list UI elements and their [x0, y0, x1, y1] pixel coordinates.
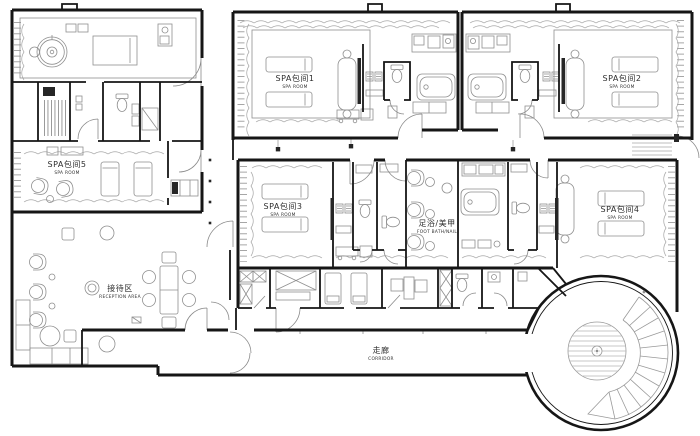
side-table-icon — [49, 303, 55, 309]
sofa-icon — [566, 50, 584, 118]
room-label-spa4: SPA包间4 SPA ROOM — [601, 204, 640, 221]
shower-icon — [540, 204, 547, 213]
wall — [238, 268, 566, 330]
stool-icon — [64, 330, 76, 342]
bench-icon — [539, 226, 554, 233]
room-label-spa3-en: SPA ROOM — [270, 212, 295, 218]
floor-plan-page: SPA包间1 SPA ROOM SPA包间2 SPA ROOM SPA包间3 S… — [0, 0, 700, 436]
shower-icon — [549, 204, 556, 213]
shower-icon — [345, 204, 352, 213]
room-label-footbath: 足浴/美甲 FOOT BATH/NAIL — [417, 218, 457, 235]
plant-icon — [85, 281, 99, 295]
shower-icon — [543, 72, 550, 81]
sink-icon — [132, 116, 139, 126]
closet-icon — [440, 270, 452, 306]
column-dot — [209, 159, 212, 162]
round-table-icon — [100, 226, 114, 240]
mirror-panel — [358, 58, 362, 104]
toilet-icon — [116, 94, 128, 112]
sofa-icon — [338, 50, 356, 118]
room-label-reception-en: RECEPTION AREA — [99, 294, 141, 300]
wall — [233, 140, 236, 330]
closet-icon — [142, 108, 158, 130]
room-label-spa2-en: SPA ROOM — [609, 84, 634, 90]
control-icon — [76, 104, 82, 110]
massage-bed-icon — [134, 162, 152, 196]
armchair-icon — [30, 254, 47, 270]
pedicure-station-icon — [408, 170, 453, 251]
wall — [270, 268, 513, 308]
room-label-spa4-en: SPA ROOM — [607, 215, 632, 221]
counter-icon — [462, 163, 505, 176]
massage-bed-icon — [598, 221, 644, 236]
room-label-footbath-en: FOOT BATH/NAIL — [417, 229, 457, 235]
room-label-spa3-zh: SPA包间3 — [264, 201, 303, 211]
sofa-icon — [556, 175, 574, 243]
massage-bed-icon — [266, 57, 312, 72]
cabinet-icon — [78, 24, 88, 32]
toilet-icon — [512, 202, 530, 214]
room-label-spa2-zh: SPA包间2 — [603, 73, 642, 83]
dark-cabinet — [172, 182, 178, 194]
vanity-icon — [158, 24, 172, 46]
control-icon — [76, 96, 82, 102]
wall — [82, 250, 230, 366]
massage-bed-icon — [612, 57, 658, 72]
room-label-spa5-en: SPA ROOM — [54, 170, 79, 176]
sink-icon — [132, 104, 139, 114]
room-label-spa3: SPA包间3 SPA ROOM — [264, 201, 303, 218]
spiral-stair-room — [520, 276, 678, 430]
sink-icon — [511, 164, 527, 172]
room-label-spa1: SPA包间1 SPA ROOM — [276, 73, 315, 90]
desk-bell-icon — [132, 317, 141, 323]
room-label-corridor-zh: 走廊 — [373, 345, 390, 355]
tree-icon — [568, 322, 626, 380]
wc-wall — [384, 62, 410, 100]
armchair-icon — [55, 179, 74, 198]
chamfer-wall — [553, 268, 566, 284]
room-label-reception: 接待区 RECEPTION AREA — [99, 283, 141, 300]
toilet-icon — [359, 200, 371, 218]
closet-icon — [276, 271, 316, 300]
side-table-icon — [49, 274, 55, 280]
table-icon — [462, 240, 475, 248]
bathtub-icon — [461, 189, 499, 215]
sliding-door-panel — [331, 198, 335, 240]
armchair-icon — [30, 284, 47, 300]
shelf-icon — [413, 102, 446, 113]
mirror-panel — [562, 58, 566, 104]
toilet-icon — [391, 65, 403, 83]
bench-icon — [366, 90, 383, 96]
block-a-outer-wall — [12, 10, 202, 212]
sink-icon — [356, 165, 372, 173]
bench-icon — [336, 226, 351, 233]
shelf-icon — [476, 102, 509, 113]
wc-wall — [353, 162, 406, 250]
room-label-reception-zh: 接待区 — [107, 283, 133, 293]
massage-bed-icon — [612, 92, 658, 107]
massage-bed-icon — [262, 217, 308, 232]
armchair-icon — [30, 177, 49, 196]
shower-icon — [552, 72, 559, 81]
dining-table-icon — [143, 252, 196, 328]
toilet-icon — [382, 216, 400, 228]
bed-icon — [93, 36, 137, 65]
reception-counter-icon — [16, 300, 88, 364]
room-label-corridor-en: CORRIDOR — [368, 356, 394, 362]
wall — [406, 160, 458, 268]
side-table-icon — [47, 196, 54, 203]
room-label-footbath-zh: 足浴/美甲 — [418, 218, 455, 228]
sink-icon — [488, 272, 500, 282]
room-label-spa4-zh: SPA包间4 — [601, 204, 640, 214]
door-leaf — [674, 134, 679, 142]
sink-icon — [518, 272, 527, 281]
room-label-spa2: SPA包间2 SPA ROOM — [603, 73, 642, 90]
room-label-spa5: SPA包间5 SPA ROOM — [48, 159, 87, 176]
column-marker-icon — [511, 140, 515, 151]
room-label-spa1-zh: SPA包间1 — [276, 73, 315, 83]
toilet-icon — [456, 274, 468, 292]
block-b-outer-wall — [233, 12, 458, 140]
round-stool-icon — [99, 336, 115, 352]
massage-bed-icon — [101, 162, 119, 196]
spa-floor-plan: SPA包间1 SPA ROOM SPA包间2 SPA ROOM SPA包间3 S… — [0, 0, 700, 436]
trolley-icon — [337, 109, 373, 123]
bathtub-icon — [417, 74, 455, 100]
toilet-icon — [519, 65, 531, 83]
column-dot — [209, 180, 212, 183]
shower-icon — [366, 72, 373, 81]
jacuzzi-icon — [30, 35, 68, 67]
room-label-spa1-en: SPA ROOM — [282, 84, 307, 90]
column-dot — [209, 222, 212, 225]
sliding-door-panel — [555, 198, 559, 240]
bathtub-icon — [468, 74, 506, 100]
lounge-bed-icon — [351, 273, 367, 304]
desk-icon — [391, 277, 427, 299]
sauna-stove-icon — [43, 87, 55, 96]
shower-icon — [336, 204, 343, 213]
massage-bed-icon — [266, 92, 312, 107]
round-table-icon — [40, 326, 60, 346]
table-icon — [478, 240, 491, 248]
massage-bed-icon — [598, 191, 644, 206]
stool-icon — [62, 228, 74, 240]
room-label-spa5-zh: SPA包间5 — [48, 159, 87, 169]
massage-bed-icon — [262, 184, 308, 199]
bench-icon — [539, 90, 556, 96]
rotunda-opening — [520, 334, 533, 372]
lounge-bed-icon — [325, 273, 341, 304]
column-marker-icon — [276, 140, 280, 151]
wc-wall — [512, 62, 538, 100]
armchair-icon — [30, 312, 47, 328]
room-label-corridor: 走廊 CORRIDOR — [368, 345, 394, 362]
column-dot — [209, 201, 212, 204]
shower-icon — [375, 72, 382, 81]
trolley-icon — [336, 246, 372, 260]
sink-icon — [380, 164, 398, 172]
room-outline — [20, 18, 196, 78]
counter-icon — [412, 34, 456, 52]
block-c-outer-wall — [462, 12, 692, 140]
counter-icon — [466, 34, 510, 52]
stool-icon — [494, 241, 500, 247]
cabinet-icon — [66, 24, 76, 32]
